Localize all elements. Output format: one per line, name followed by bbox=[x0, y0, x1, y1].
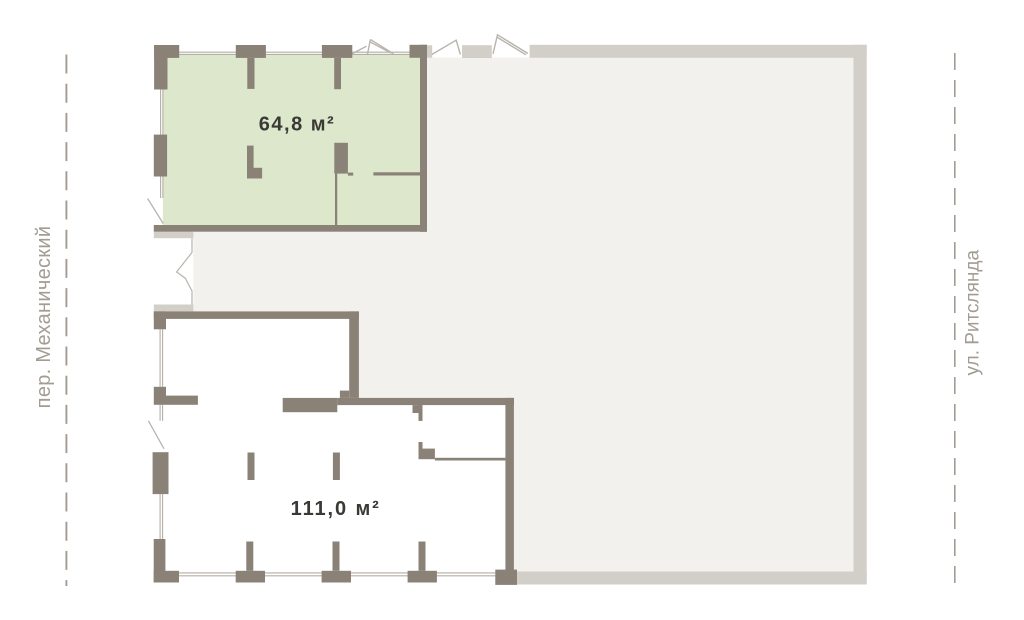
svg-text:64,8 м²: 64,8 м² bbox=[259, 114, 335, 136]
svg-text:пер. Механический: пер. Механический bbox=[33, 226, 55, 409]
svg-text:111,0 м²: 111,0 м² bbox=[291, 498, 381, 520]
svg-text:ул. Ритслянда: ул. Ритслянда bbox=[962, 250, 983, 376]
